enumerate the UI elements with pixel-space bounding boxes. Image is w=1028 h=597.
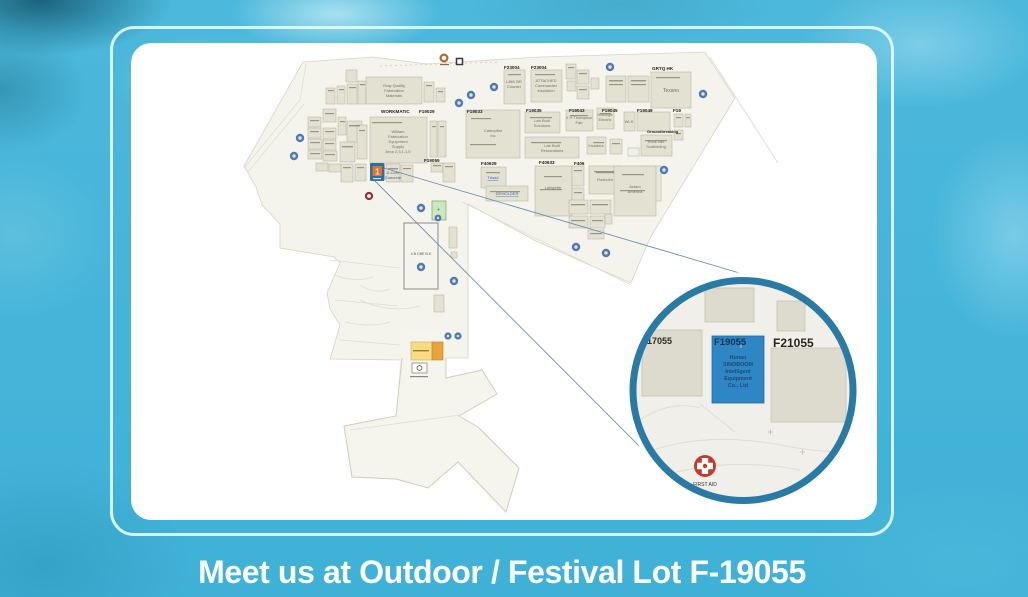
svg-text:Concrete: Concrete	[385, 175, 402, 180]
svg-text:Texano: Texano	[663, 88, 679, 94]
svg-text:17055: 17055	[647, 336, 672, 346]
svg-text:F21055: F21055	[773, 336, 814, 350]
svg-text:F19055: F19055	[424, 158, 440, 163]
svg-text:Intelligent: Intelligent	[725, 369, 751, 375]
svg-text:F40629: F40629	[481, 161, 497, 166]
svg-text:Inc: Inc	[490, 133, 495, 138]
svg-text:Equipment: Equipment	[724, 376, 752, 382]
svg-text:Area 2,3,1,1,0: Area 2,3,1,1,0	[385, 149, 411, 154]
svg-text:F19055: F19055	[714, 337, 747, 348]
svg-text:+: +	[437, 207, 440, 213]
svg-text:Fab: Fab	[576, 120, 584, 125]
svg-text:Lafayette: Lafayette	[545, 185, 562, 190]
svg-text:SINOBOOM: SINOBOOM	[723, 362, 753, 368]
svg-text:F19029: F19029	[419, 109, 435, 114]
svg-text:Insulation: Insulation	[537, 88, 554, 93]
svg-text:Scaffolding: Scaffolding	[646, 144, 666, 149]
svg-text:F19: F19	[673, 108, 681, 113]
svg-text:DEMOLDER: DEMOLDER	[496, 191, 519, 196]
svg-text:F19049: F19049	[637, 108, 653, 113]
svg-text:F19033: F19033	[467, 109, 483, 114]
svg-text:F19045: F19045	[602, 108, 618, 113]
svg-text:4 B CBE B-K: 4 B CBE B-K	[411, 252, 432, 256]
svg-text:F19035: F19035	[526, 108, 542, 113]
svg-text:Rosholm: Rosholm	[597, 177, 613, 182]
svg-text:Trisad: Trisad	[488, 175, 499, 180]
svg-text:F40633: F40633	[539, 160, 555, 165]
svg-text:Invaders: Invaders	[588, 143, 603, 148]
svg-text:1: 1	[375, 168, 380, 177]
svg-text:F23004: F23004	[504, 65, 520, 70]
svg-text:Electric: Electric	[598, 117, 611, 122]
svg-text:America: America	[628, 189, 643, 194]
svg-text:F406: F406	[574, 161, 585, 166]
svg-text:Hunan: Hunan	[730, 355, 747, 361]
svg-text:WORKMATIC: WORKMATIC	[381, 109, 410, 114]
svg-text:Co., Ltd: Co., Ltd	[728, 383, 748, 389]
svg-text:Restorations: Restorations	[541, 148, 563, 153]
svg-text:WLS: WLS	[625, 119, 634, 124]
svg-text:Solutions: Solutions	[534, 123, 550, 128]
svg-text:F19043: F19043	[569, 108, 585, 113]
svg-text:Materials: Materials	[386, 93, 402, 98]
svg-text:Counter: Counter	[507, 84, 522, 89]
svg-text:F23004: F23004	[531, 65, 547, 70]
svg-text:Groundbreaking: Groundbreaking	[647, 129, 679, 134]
svg-text:GRTQ HK: GRTQ HK	[652, 66, 674, 71]
